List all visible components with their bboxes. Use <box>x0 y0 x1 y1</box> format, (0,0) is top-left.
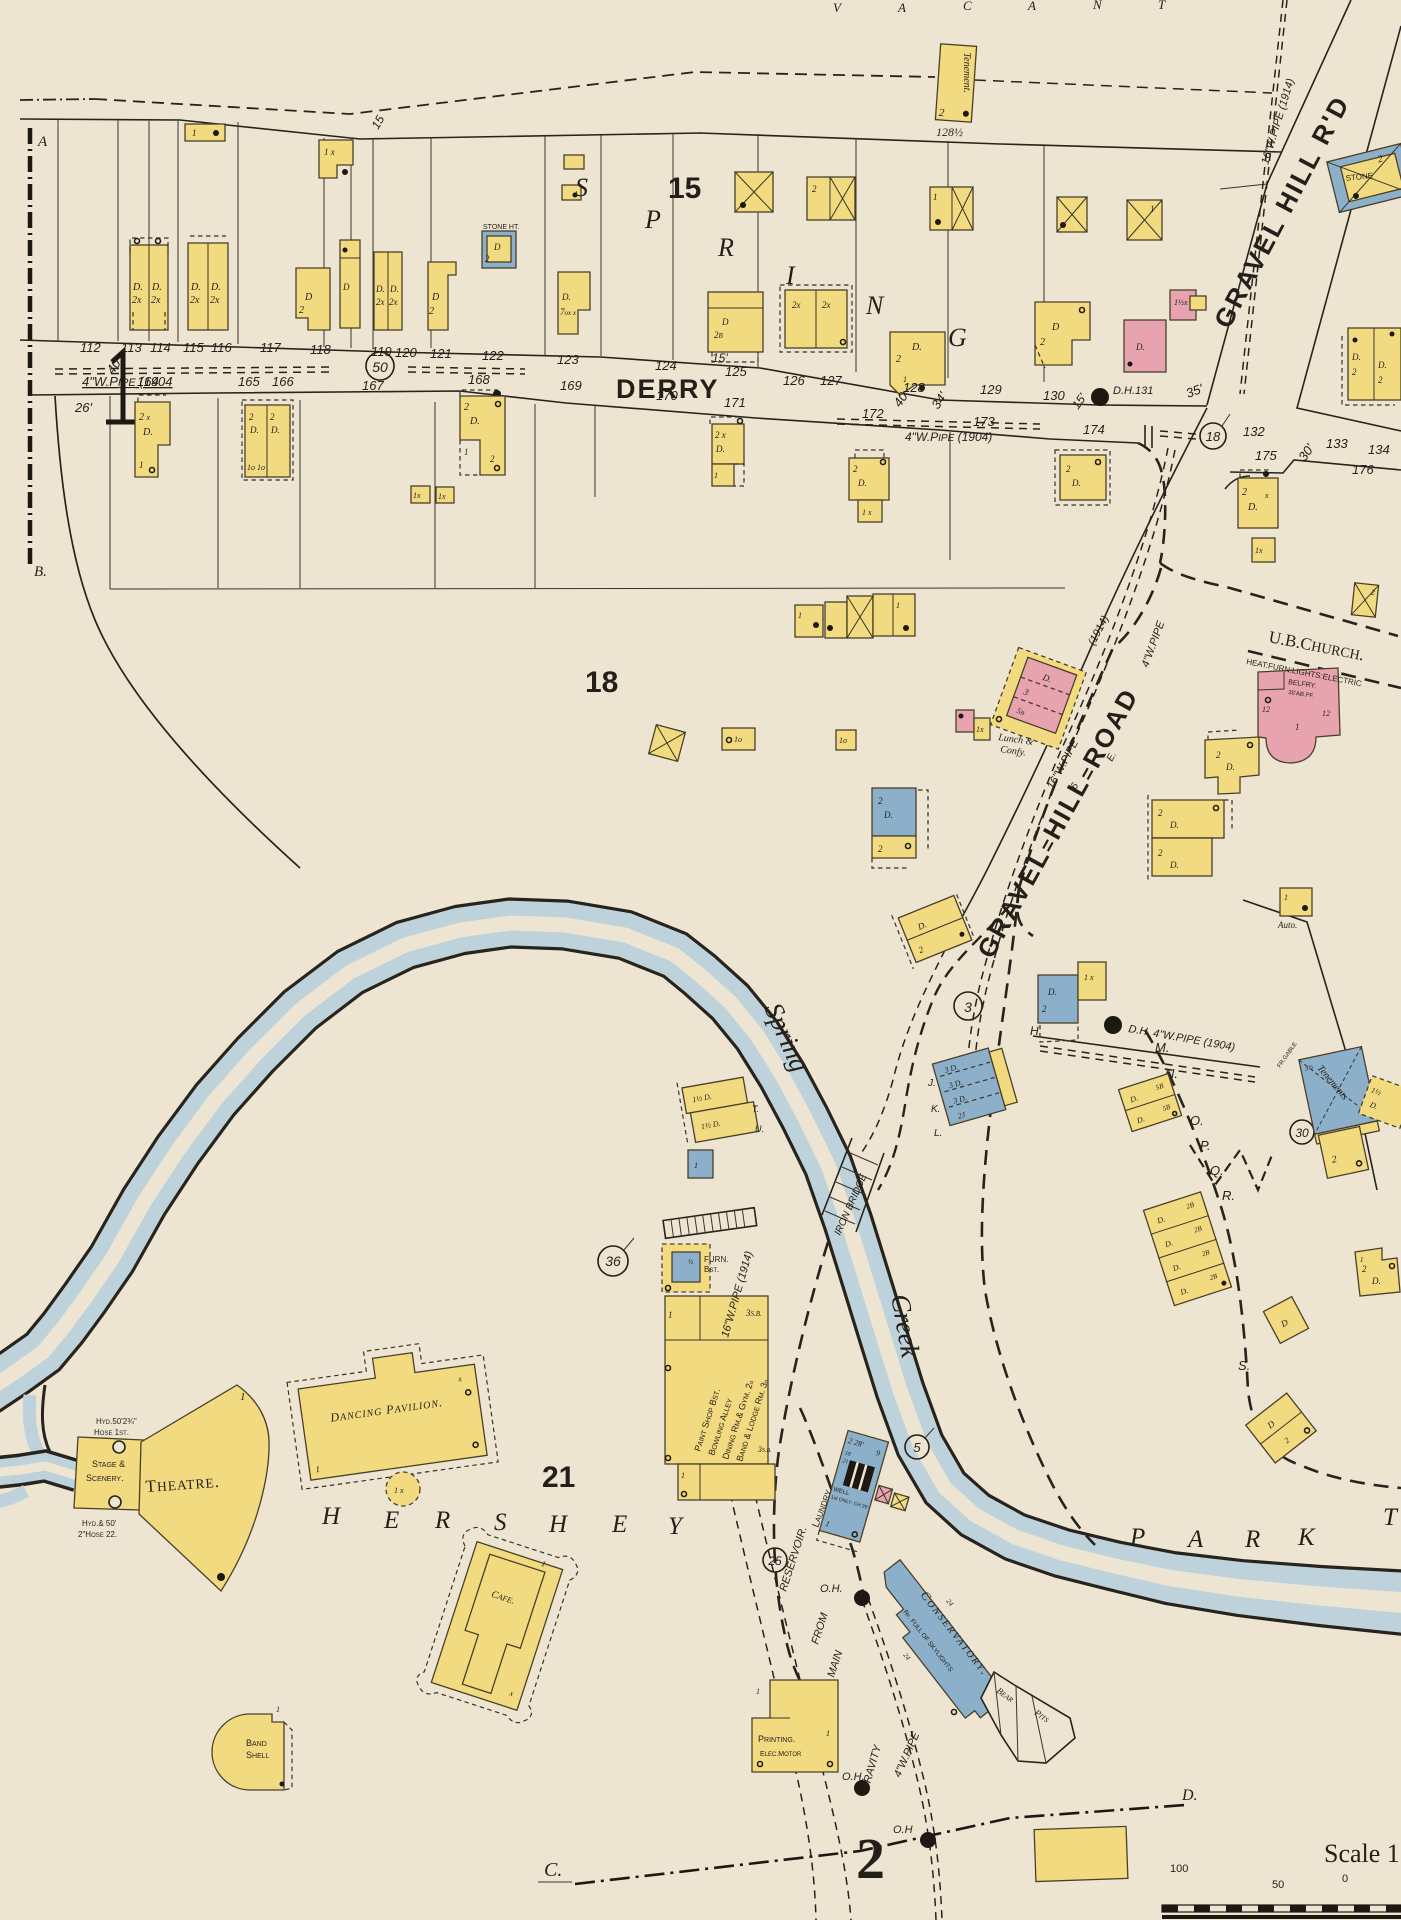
svg-text:Scale 1: Scale 1 <box>1324 1839 1400 1868</box>
svg-text:2x: 2x <box>210 295 220 306</box>
svg-text:1 x: 1 x <box>324 147 335 157</box>
svg-text:1x: 1x <box>1255 546 1263 555</box>
svg-text:1o 1o: 1o 1o <box>247 463 265 472</box>
svg-text:A: A <box>37 134 48 150</box>
svg-text:O.H: O.H <box>893 1824 913 1836</box>
svg-text:1: 1 <box>714 471 718 480</box>
svg-text:D: D <box>493 242 501 252</box>
svg-text:1: 1 <box>1150 204 1155 214</box>
svg-text:1: 1 <box>826 1729 830 1738</box>
svg-text:2 x: 2 x <box>715 430 726 440</box>
svg-text:2x: 2x <box>389 297 398 307</box>
svg-text:2x: 2x <box>151 295 161 306</box>
svg-text:12: 12 <box>1322 709 1330 718</box>
svg-text:1: 1 <box>694 1161 698 1170</box>
svg-text:D.: D. <box>151 282 162 293</box>
svg-text:15': 15' <box>712 351 728 365</box>
svg-text:D.: D. <box>1225 762 1235 772</box>
svg-text:2: 2 <box>878 796 883 806</box>
svg-text:2: 2 <box>1242 487 1247 498</box>
svg-text:2: 2 <box>1066 464 1071 474</box>
svg-text:K.: K. <box>931 1104 940 1115</box>
svg-text:D.: D. <box>911 342 922 353</box>
svg-text:D.: D. <box>210 282 221 293</box>
svg-text:2x: 2x <box>376 297 385 307</box>
svg-text:2: 2 <box>812 184 817 194</box>
svg-text:18: 18 <box>585 666 618 699</box>
svg-text:L.: L. <box>934 1128 942 1139</box>
svg-text:1: 1 <box>240 1391 246 1403</box>
svg-text:7ox x: 7ox x <box>560 307 577 317</box>
svg-text:D.: D. <box>142 427 153 438</box>
svg-text:C.: C. <box>544 1859 562 1881</box>
svg-text:2: 2 <box>270 412 275 422</box>
svg-text:ELEC.MOTOR: ELEC.MOTOR <box>760 1751 802 1758</box>
svg-text:1: 1 <box>681 1471 685 1480</box>
svg-text:1 x: 1 x <box>394 1486 404 1495</box>
svg-text:2 x: 2 x <box>139 412 151 423</box>
svg-text:D.: D. <box>857 478 867 488</box>
svg-text:D.H.131: D.H.131 <box>1113 385 1153 397</box>
svg-text:Tenement.: Tenement. <box>961 52 972 92</box>
svg-text:21: 21 <box>542 1461 575 1494</box>
svg-text:1x: 1x <box>413 491 421 500</box>
svg-text:O.H.: O.H. <box>820 1583 843 1595</box>
svg-text:2: 2 <box>896 354 901 365</box>
svg-text:4"W.PIPE (1904: 4"W.PIPE (1904 <box>82 374 173 389</box>
svg-text:2: 2 <box>1158 808 1163 818</box>
svg-text:2: 2 <box>490 454 495 464</box>
svg-text:2: 2 <box>299 305 304 316</box>
svg-text:D.: D. <box>1371 1276 1381 1286</box>
svg-text:2x: 2x <box>822 300 831 310</box>
svg-text:U.: U. <box>755 1124 764 1134</box>
svg-text:D.: D. <box>249 425 259 435</box>
svg-text:J.: J. <box>927 1078 936 1089</box>
svg-text:1: 1 <box>756 1687 760 1696</box>
svg-text:1 x: 1 x <box>1084 973 1094 982</box>
svg-text:1: 1 <box>668 1310 673 1320</box>
svg-text:26': 26' <box>74 400 92 415</box>
svg-text:D.: D. <box>1351 352 1361 362</box>
svg-text:D.: D. <box>1169 860 1179 870</box>
svg-text:1: 1 <box>276 1705 280 1714</box>
svg-text:1x: 1x <box>976 725 984 734</box>
svg-text:2: 2 <box>1040 337 1045 348</box>
svg-text:2: 2 <box>1378 375 1383 385</box>
svg-text:2: 2 <box>853 464 858 474</box>
svg-text:1½x: 1½x <box>1174 298 1188 307</box>
svg-text:1: 1 <box>1360 1256 1364 1264</box>
svg-text:x: x <box>1264 491 1269 500</box>
svg-text:D.: D. <box>389 284 399 294</box>
svg-text:D.: D. <box>1047 987 1057 997</box>
svg-text:100: 100 <box>1170 1863 1188 1875</box>
svg-text:D.: D. <box>190 282 201 293</box>
svg-text:D.: D. <box>132 282 143 293</box>
svg-text:Auto.: Auto. <box>1277 920 1297 930</box>
svg-text:1: 1 <box>464 447 469 457</box>
svg-text:2: 2 <box>249 412 254 422</box>
svg-text:1x: 1x <box>438 492 446 501</box>
svg-text:18: 18 <box>1206 429 1221 444</box>
svg-text:2x: 2x <box>132 295 142 306</box>
svg-text:1: 1 <box>192 128 197 138</box>
svg-text:D: D <box>1051 322 1060 333</box>
svg-text:3S.B.: 3S.B. <box>745 1308 762 1318</box>
svg-text:1 x: 1 x <box>862 508 872 517</box>
svg-text:1: 1 <box>798 611 802 620</box>
svg-text:D: D <box>304 292 313 303</box>
svg-text:4"W.PIPE (1904): 4"W.PIPE (1904) <box>905 430 992 444</box>
svg-text:D.: D. <box>883 810 893 820</box>
svg-text:FURN.: FURN. <box>704 1255 728 1264</box>
svg-text:1: 1 <box>139 460 144 470</box>
svg-text:2: 2 <box>464 402 469 413</box>
svg-text:0: 0 <box>1342 1873 1348 1885</box>
svg-text:D: D <box>342 282 350 292</box>
svg-text:2: 2 <box>1352 367 1357 377</box>
svg-text:D.: D. <box>1181 1787 1198 1804</box>
svg-text:D.: D. <box>1071 478 1081 488</box>
svg-text:2: 2 <box>1042 1004 1047 1014</box>
svg-text:2: 2 <box>429 306 434 317</box>
svg-text:D.: D. <box>1169 820 1179 830</box>
svg-text:2: 2 <box>1216 750 1221 760</box>
svg-text:D.: D. <box>375 284 385 294</box>
svg-text:T: T <box>1383 1504 1399 1531</box>
svg-text:1: 1 <box>896 601 900 610</box>
svg-text:2x: 2x <box>792 300 801 310</box>
svg-text:1: 1 <box>1295 722 1300 732</box>
svg-text:D: D <box>721 317 729 327</box>
svg-text:1: 1 <box>1284 893 1288 902</box>
svg-text:D.: D. <box>1247 502 1258 513</box>
svg-text:2: 2 <box>1362 1264 1367 1274</box>
svg-text:D: D <box>431 292 440 303</box>
svg-text:50: 50 <box>1272 1879 1284 1891</box>
svg-text:128½: 128½ <box>936 125 963 139</box>
svg-text:2: 2 <box>856 1826 885 1891</box>
svg-text:T.: T. <box>752 1104 759 1114</box>
svg-text:36: 36 <box>605 1253 621 1269</box>
svg-text:1o: 1o <box>839 736 847 745</box>
svg-text:12: 12 <box>1262 705 1270 714</box>
svg-text:1o: 1o <box>734 735 742 744</box>
svg-text:5: 5 <box>913 1440 921 1455</box>
svg-text:2B: 2B <box>714 330 724 340</box>
svg-text:B.: B. <box>34 564 47 580</box>
svg-text:25: 25 <box>767 1554 782 1568</box>
svg-text:D.: D. <box>270 425 280 435</box>
svg-text:2: 2 <box>878 844 883 854</box>
svg-text:STONE HT.: STONE HT. <box>483 224 519 231</box>
svg-text:30: 30 <box>1295 1126 1309 1140</box>
svg-text:D.: D. <box>1135 342 1145 352</box>
svg-text:50: 50 <box>372 359 388 375</box>
svg-text:1: 1 <box>933 192 938 202</box>
svg-text:3: 3 <box>964 999 972 1015</box>
svg-text:D.: D. <box>469 416 480 427</box>
svg-text:2: 2 <box>485 254 490 264</box>
svg-text:2: 2 <box>1158 848 1163 858</box>
svg-text:½: ½ <box>688 1258 694 1266</box>
svg-text:D.: D. <box>715 444 725 454</box>
svg-text:D.: D. <box>561 292 571 302</box>
svg-text:15: 15 <box>668 172 701 205</box>
svg-text:HYD.& 50': HYD.& 50' <box>82 1519 117 1528</box>
svg-text:2x: 2x <box>190 295 200 306</box>
svg-text:D.: D. <box>1377 360 1387 370</box>
